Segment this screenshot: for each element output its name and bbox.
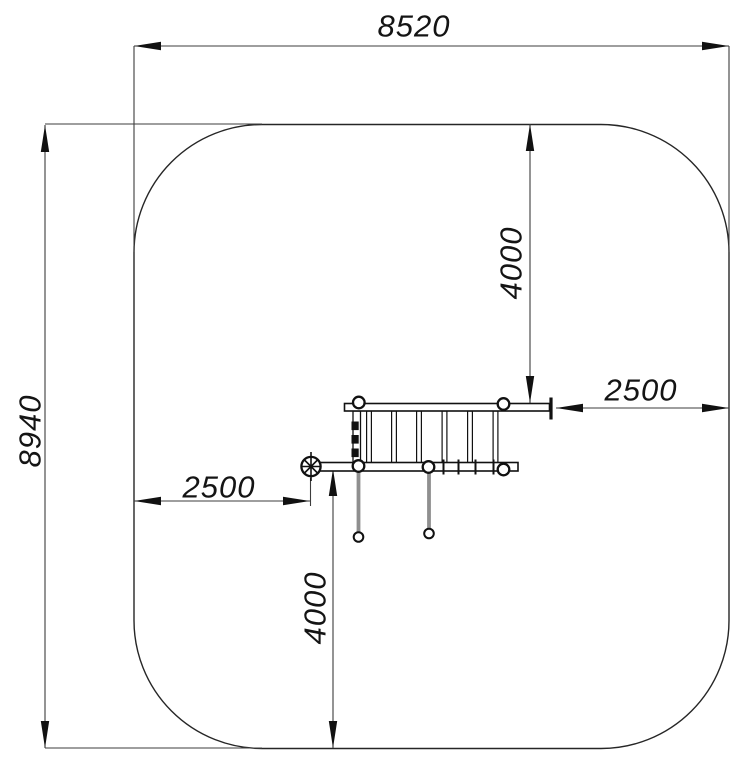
equipment-rung [367,411,372,463]
equipment-plan [301,397,551,542]
equipment-rung [493,411,498,463]
equipment-ladder-step [352,435,359,444]
dim-label-clearance-left: 2500 [183,472,256,503]
arrowhead-left [134,497,161,505]
equipment-post-bottom [353,460,365,472]
dim-overall-height [41,124,262,748]
arrowhead-right [702,42,729,50]
equipment-rungs [367,411,498,463]
plan-sheet: 8520 8940 4000 2500 2500 4000 [0,0,756,768]
dim-label-clearance-top: 4000 [496,227,527,300]
dim-label-overall-width: 8520 [378,11,451,42]
arrowhead-down [41,721,49,748]
equipment-post-top [353,397,365,409]
equipment-steering-wheel [301,452,320,481]
equipment-post-bottom [423,461,435,473]
arrowhead-up [41,125,49,152]
equipment-rung [442,411,447,463]
equipment-ladder-step [352,422,359,431]
arrowhead-down [329,721,337,748]
dim-label-clearance-bottom: 4000 [300,572,331,645]
equipment-rung [392,411,397,463]
arrowhead-right [702,404,729,412]
safety-zone-boundary [134,125,729,749]
dim-overall-width [134,42,729,252]
equipment-rung [468,411,473,463]
arrowhead-up [526,124,534,151]
equipment-post-foot [424,529,434,539]
equipment-post-foot [354,532,364,542]
arrowhead-left [556,404,583,412]
arrowhead-right [283,497,310,505]
dim-label-overall-height: 8940 [15,395,46,468]
dim-label-clearance-right: 2500 [605,375,678,406]
equipment-top-beam [345,404,550,412]
equipment-ladder-step [352,449,359,458]
wheel-hub [309,464,313,468]
equipment-post-bottom [498,464,510,476]
safety-zone-outline [134,125,729,749]
equipment-post-top [498,398,510,410]
arrowhead-left [134,42,161,50]
arrowhead-down [526,376,534,403]
equipment-bottom-beam [320,463,519,472]
arrowhead-up [329,469,337,496]
equipment-rung [417,411,422,463]
